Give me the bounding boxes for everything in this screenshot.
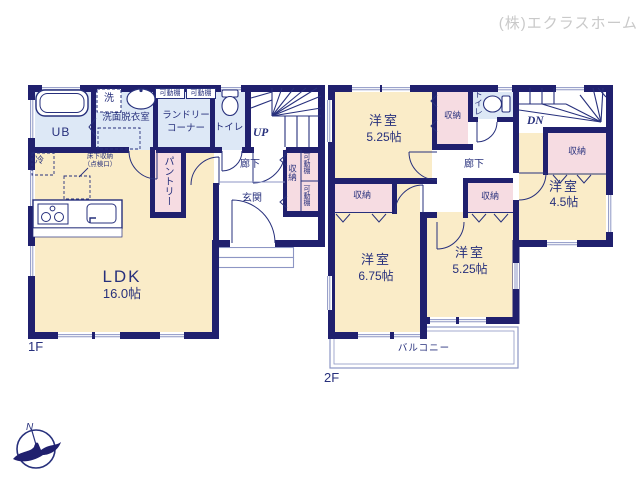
- room-sw-name: 洋室: [344, 253, 408, 268]
- bathtub-icon: [36, 90, 88, 116]
- compass-north-label: N: [26, 422, 33, 433]
- porch-steps: [219, 248, 294, 268]
- storage-a-label: 収納: [552, 146, 602, 156]
- fridge-label: 冷: [35, 155, 44, 165]
- movable-shelf-label-2: 可動棚: [186, 88, 216, 99]
- ldk-size-label: 16.0帖: [70, 287, 174, 302]
- toilet-icon-1f: [222, 90, 238, 116]
- floorplan-drawing: [0, 0, 640, 480]
- floor2-label: 2F: [324, 371, 339, 386]
- laundry-corner-label: ランドリー: [156, 111, 216, 122]
- storage-c-label: 収納: [332, 190, 392, 200]
- storage-strip-label: 収納: [437, 111, 468, 121]
- stairs-up-label: UP: [253, 127, 268, 140]
- floor1-label: 1F: [28, 340, 43, 355]
- stairs-down-label: DN: [527, 115, 544, 128]
- room-s-size: 5.25帖: [438, 263, 502, 276]
- pantry-label: パントリー: [162, 156, 172, 206]
- underfloor-label2: （点検口）: [82, 161, 118, 168]
- hallway-label-1f: 廊下: [234, 159, 266, 170]
- room-ldk: [31, 150, 214, 335]
- movable-shelf-label-1: 可動棚: [155, 88, 185, 99]
- compass-icon: [13, 430, 61, 468]
- room-e-size: 4.5帖: [533, 196, 595, 209]
- sink-icon: [87, 204, 116, 223]
- underfloor-label: 床下収納: [82, 153, 118, 160]
- kitchen-counter: [33, 200, 122, 237]
- room-nw-name: 洋室: [352, 114, 416, 129]
- washbasin-icon: [127, 89, 155, 109]
- toilet-label-1f: トイレ: [213, 123, 245, 134]
- balcony-label: バルコニー: [378, 344, 470, 355]
- floorplan-canvas: (株)エクラスホーム UB 洗 洗面脱衣室 ランドリー コーナー 可動棚 可動棚…: [0, 0, 640, 480]
- toilet-icon-2f: [484, 96, 511, 112]
- movable-shelf-label-3: 可動棚: [303, 153, 310, 174]
- company-watermark: (株)エクラスホーム: [492, 12, 638, 33]
- laundry-corner-label2: コーナー: [156, 124, 216, 135]
- storage-b-label: 収納: [466, 191, 514, 201]
- washer-label: 洗: [97, 93, 121, 104]
- room-e-name: 洋室: [533, 180, 595, 195]
- washroom-label: 洗面脱衣室: [95, 113, 157, 124]
- entrance-label: 玄関: [236, 193, 268, 204]
- room-nw-size: 5.25帖: [352, 131, 416, 144]
- room-s-name: 洋室: [438, 246, 502, 261]
- ldk-name-label: LDK: [70, 267, 174, 286]
- bath-label: UB: [33, 126, 89, 139]
- room-sw-size: 6.75帖: [344, 270, 408, 283]
- toilet-label-2f: トイレ: [474, 90, 483, 116]
- movable-shelf-label-4: 可動棚: [303, 185, 310, 206]
- hallway-label-2f: 廊下: [456, 159, 492, 170]
- storage-label-1f: 収納: [288, 164, 297, 181]
